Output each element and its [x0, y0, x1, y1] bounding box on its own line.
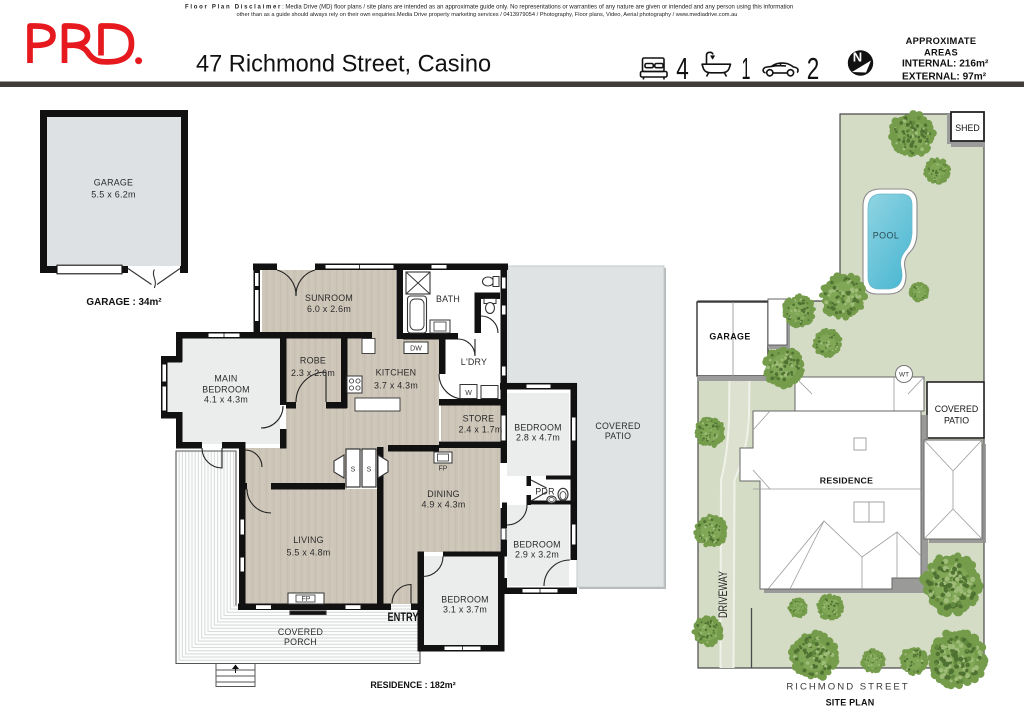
svg-text:RESIDENCE: RESIDENCE [820, 476, 873, 486]
svg-text:S: S [367, 467, 372, 474]
svg-text:2.3 x 2.6m: 2.3 x 2.6m [291, 368, 335, 378]
svg-text:MAIN: MAIN [214, 374, 237, 384]
svg-text:RESIDENCE : 182m²: RESIDENCE : 182m² [370, 680, 455, 690]
svg-text:PATIO: PATIO [944, 416, 969, 426]
svg-text:3.1 x 3.7m: 3.1 x 3.7m [443, 604, 487, 614]
svg-text:L'DRY: L'DRY [461, 357, 487, 367]
svg-text:2.9 x 3.2m: 2.9 x 3.2m [515, 549, 559, 559]
svg-text:other than as a guide should a: other than as a guide should always rely… [237, 12, 738, 18]
svg-text:DW: DW [410, 346, 422, 353]
svg-text:5.5 x 4.8m: 5.5 x 4.8m [287, 548, 331, 558]
svg-text:BEDROOM: BEDROOM [441, 594, 489, 604]
svg-text:ENTRY: ENTRY [388, 612, 419, 624]
svg-text:PDR: PDR [535, 486, 555, 496]
svg-text:W: W [465, 390, 472, 397]
svg-text:STORE: STORE [463, 414, 495, 424]
svg-text:ROBE: ROBE [300, 356, 326, 366]
svg-text:COVERED: COVERED [935, 404, 979, 414]
svg-text:AREAS: AREAS [924, 48, 958, 58]
svg-text:Floor Plan Disclaimer: Media D: Floor Plan Disclaimer: Media Drive (MD) … [185, 5, 793, 11]
svg-text:4.9 x 4.3m: 4.9 x 4.3m [422, 499, 466, 509]
svg-text:WT: WT [899, 372, 909, 379]
svg-text:KITCHEN: KITCHEN [376, 368, 417, 378]
svg-text:SHED: SHED [955, 123, 979, 133]
svg-text:COVERED: COVERED [278, 627, 323, 637]
svg-text:BATH: BATH [436, 294, 460, 304]
svg-text:N: N [853, 50, 862, 65]
svg-text:47 Richmond Street, Casino: 47 Richmond Street, Casino [196, 52, 491, 78]
svg-text:BEDROOM: BEDROOM [514, 422, 562, 432]
svg-text:PORCH: PORCH [284, 637, 317, 647]
svg-text:1: 1 [742, 51, 751, 86]
svg-text:2.8 x 4.7m: 2.8 x 4.7m [516, 433, 560, 443]
svg-text:SUNROOM: SUNROOM [305, 293, 353, 303]
svg-text:EXTERNAL: 97m²: EXTERNAL: 97m² [902, 72, 987, 83]
svg-text:PATIO: PATIO [605, 431, 631, 441]
svg-text:APPROXIMATE: APPROXIMATE [906, 36, 977, 46]
svg-text:COVERED: COVERED [595, 421, 640, 431]
svg-text:GARAGE: GARAGE [709, 332, 750, 342]
svg-text:BEDROOM: BEDROOM [513, 539, 561, 549]
svg-text:4: 4 [676, 51, 689, 86]
svg-text:6.0 x 2.6m: 6.0 x 2.6m [307, 304, 351, 314]
svg-text:4.1 x 4.3m: 4.1 x 4.3m [204, 395, 248, 405]
svg-text:BEDROOM: BEDROOM [202, 385, 250, 395]
svg-text:DINING: DINING [427, 489, 460, 499]
svg-text:INTERNAL: 216m²: INTERNAL: 216m² [902, 59, 989, 70]
svg-text:5.5 x 6.2m: 5.5 x 6.2m [91, 189, 136, 199]
svg-text:GARAGE: GARAGE [94, 177, 133, 187]
svg-text:S: S [351, 467, 356, 474]
svg-text:RICHMOND STREET: RICHMOND STREET [786, 682, 909, 693]
svg-text:3.7 x 4.3m: 3.7 x 4.3m [374, 381, 418, 391]
svg-text:LIVING: LIVING [293, 535, 324, 545]
svg-text:FP: FP [302, 596, 311, 603]
svg-text:DRIVEWAY: DRIVEWAY [716, 571, 730, 618]
svg-text:SITE PLAN: SITE PLAN [826, 698, 875, 708]
svg-text:2: 2 [807, 51, 820, 86]
svg-text:FP: FP [439, 466, 448, 473]
svg-text:GARAGE : 34m²: GARAGE : 34m² [86, 297, 162, 308]
svg-text:POOL: POOL [873, 231, 899, 241]
svg-text:2.4 x 1.7m: 2.4 x 1.7m [459, 425, 503, 435]
